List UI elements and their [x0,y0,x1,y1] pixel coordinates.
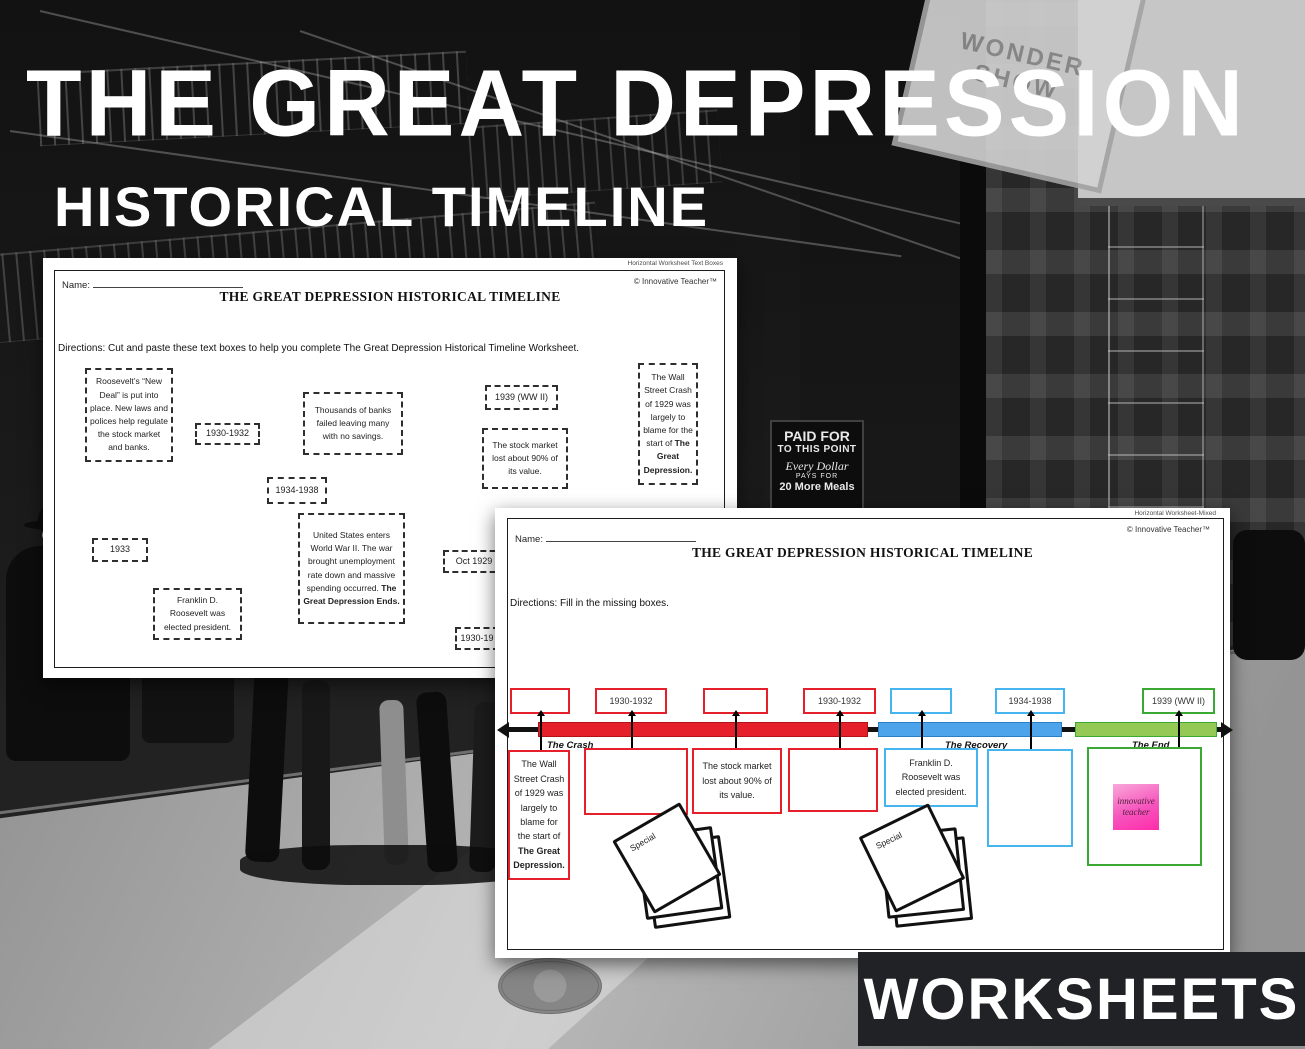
cutout-box-us-enters-ww2: United States enters World War II. The w… [298,513,405,624]
cutout-box-text: Oct 1929 [456,555,493,569]
cutout-box-text: 1934-1938 [275,484,318,498]
special-label: Special [874,830,903,851]
timeline-segment-end [1075,722,1217,737]
event-box-stock-market: The stock market lost about 90% of its v… [692,748,782,814]
cutout-box-banks-failed: Thousands of banks failed leaving many w… [303,392,403,455]
name-label: Name: [515,534,543,545]
cutout-box-text: 1930-1932 [206,427,249,441]
worksheet-mixed-page: Horizontal Worksheet-Mixed © Innovative … [495,508,1230,958]
cutout-box-text: 1930-19 [460,632,493,646]
cutout-box-text: United States enters World War II. The w… [303,529,400,608]
cutout-box-1933: 1933 [92,538,148,562]
paid-sign-line: PAYS FOR [772,473,862,481]
cutout-box-text: Franklin D. Roosevelt was elected presid… [158,594,237,634]
cover-subtitle: HISTORICAL TIMELINE [54,174,709,239]
cutout-box-1939-wwii: 1939 (WW II) [485,385,558,410]
cutout-box-stock-market: The stock market lost about 90% of its v… [482,428,568,489]
name-field: Name: [515,532,696,545]
event-box-empty [788,748,878,812]
cutout-box-text: Thousands of banks failed leaving many w… [308,404,398,444]
cutout-box-text: Roosevelt’s “New Deal” is put into place… [90,375,168,454]
cutout-box-text: The Wall Street Crash of 1929 was largel… [643,371,693,476]
copyright-text: © Innovative Teacher™ [634,277,717,286]
connector-arrow-icon [540,716,542,754]
timeline-segment-crash [538,722,868,737]
cutout-box-1930-19-clipped: 1930-19 [455,627,499,650]
paid-sign-line: PAID FOR [772,428,862,444]
copyright-text: © Innovative Teacher™ [1127,525,1210,534]
worksheets-banner: WORKSHEETS [858,952,1305,1046]
manhole-cover [498,958,602,1014]
event-box-fdr-elected: Franklin D. Roosevelt was elected presid… [884,748,978,807]
directions-text: Directions: Fill in the missing boxes. [510,598,669,609]
worksheet-title: THE GREAT DEPRESSION HISTORICAL TIMELINE [495,545,1230,561]
innovative-teacher-logo: innovative teacher [1113,784,1159,830]
paid-sign-line: Every Dollar [772,460,862,474]
worksheets-banner-text: WORKSHEETS [864,966,1300,1033]
special-label: Special [628,831,657,854]
directions-text: Directions: Cut and paste these text box… [58,343,579,354]
special-papers-icon: Special [871,816,981,931]
paid-for-sign: PAID FOR TO THIS POINT Every Dollar PAYS… [770,420,864,512]
paid-sign-line: 20 More Meals [772,481,862,494]
cover-title: THE GREAT DEPRESSION [26,50,1286,158]
name-blank-line [546,532,696,542]
parked-car-silhouette [1233,530,1305,660]
event-box-wall-street-crash: The Wall Street Crash of 1929 was largel… [508,750,570,880]
timeline-segment-recovery [878,722,1062,737]
paid-sign-line: TO THIS POINT [772,444,862,456]
cutout-box-wall-street-crash: The Wall Street Crash of 1929 was largel… [638,363,698,485]
cutout-box-new-deal: Roosevelt’s “New Deal” is put into place… [85,368,173,462]
cutout-box-text: 1939 (WW II) [495,391,548,405]
timeline-right-arrowhead [1221,722,1233,738]
special-papers-icon: Special [628,816,738,931]
event-box-empty [987,749,1073,847]
name-blank-line [93,278,243,288]
page-type-label: Horizontal Worksheet-Mixed [1134,510,1216,517]
event-box-logo: innovative teacher [1087,747,1202,866]
timeline-left-arrowhead [497,722,509,738]
worksheet-title: THE GREAT DEPRESSION HISTORICAL TIMELINE [43,289,737,305]
person-legs [302,680,330,870]
cutout-box-1934-1938: 1934-1938 [267,477,327,504]
page-type-label: Horizontal Worksheet Text Boxes [628,260,724,267]
cutout-box-text: 1933 [110,543,130,557]
cutout-box-1930-1932: 1930-1932 [195,423,260,445]
cutout-box-text: The stock market lost about 90% of its v… [487,439,563,479]
product-cover: WONDER SHOW PAID FOR TO THIS POINT Every… [0,0,1305,1049]
cutout-box-fdr-elected: Franklin D. Roosevelt was elected presid… [153,588,242,640]
